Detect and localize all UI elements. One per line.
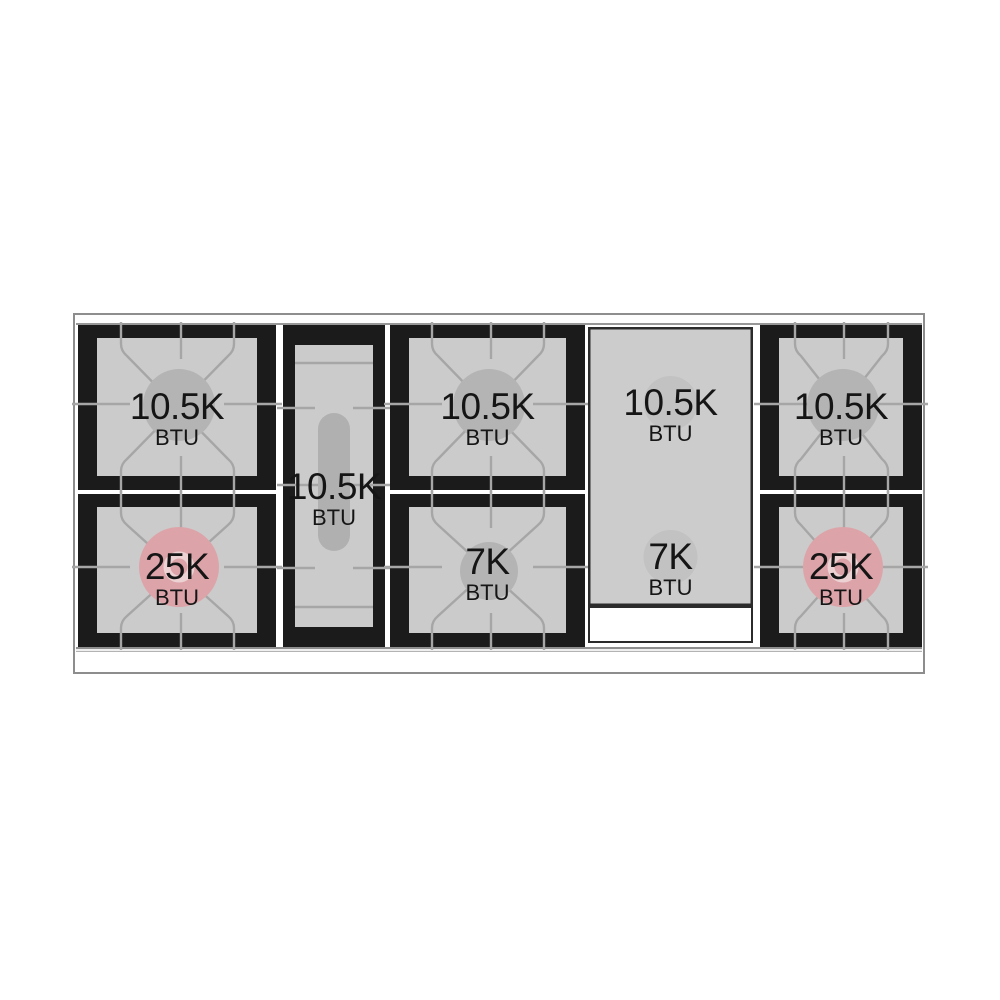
oval-burner-grate	[283, 325, 385, 647]
burner-grate	[78, 325, 276, 490]
burner-grate	[390, 325, 585, 490]
griddle-plate: 10.5K BTU 7K BTU	[588, 327, 753, 606]
rangetop-diagram: 10.5K BTU 25K BTU 10.5K BTU 10.5K BTU 7K…	[0, 0, 1000, 1000]
burner-grate	[390, 494, 585, 647]
burner-grate	[760, 325, 922, 490]
burner-right-bottom: 25K BTU	[760, 494, 922, 647]
burner-left-bottom: 25K BTU	[78, 494, 276, 647]
burner-middle-top: 10.5K BTU	[390, 325, 585, 490]
burner-right-top: 10.5K BTU	[760, 325, 922, 490]
griddle-surface	[588, 327, 753, 606]
burner-grate	[760, 494, 922, 647]
burner-left-top: 10.5K BTU	[78, 325, 276, 490]
burner-grate	[78, 494, 276, 647]
burner-center-oval: 10.5K BTU	[283, 325, 385, 647]
burner-middle-bottom: 7K BTU	[390, 494, 585, 647]
griddle-front-tray	[588, 606, 753, 643]
